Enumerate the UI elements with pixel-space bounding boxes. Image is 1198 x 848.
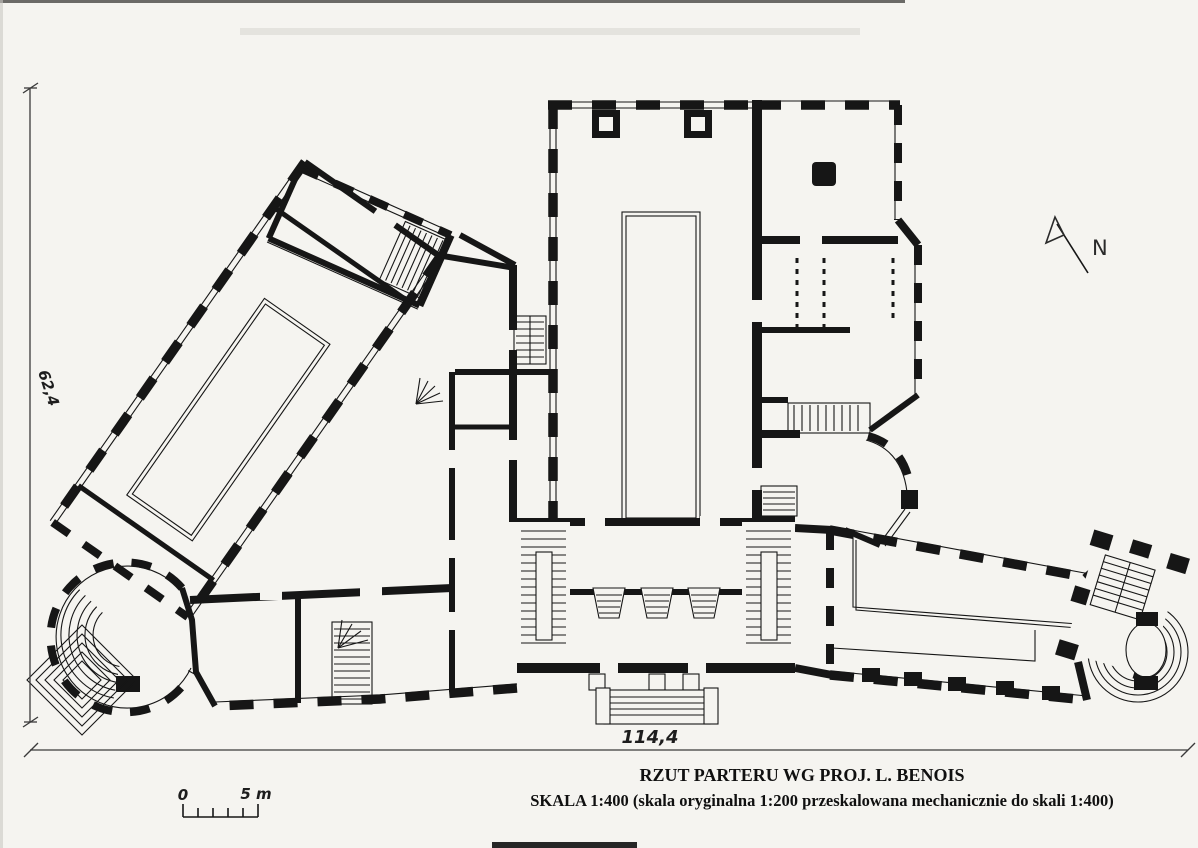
left-stair-hall bbox=[517, 522, 570, 652]
pier bbox=[592, 110, 620, 138]
stair-eye bbox=[1126, 623, 1166, 677]
scanned-floor-plan-sheet: N 62,4 114,4 0 5 m RZUT PARTERU WG PROJ.… bbox=[0, 0, 1198, 848]
dim-bottom-label: 114,4 bbox=[622, 727, 679, 748]
exterior-steps bbox=[596, 688, 718, 724]
plan-title: RZUT PARTERU WG PROJ. L. BENOIS bbox=[640, 765, 965, 785]
pier bbox=[901, 490, 918, 509]
floor-plan-svg: N 62,4 114,4 0 5 m RZUT PARTERU WG PROJ.… bbox=[0, 0, 1198, 848]
pier bbox=[812, 162, 836, 186]
scalebar-zero-label: 0 bbox=[178, 786, 188, 804]
vestibule-stairs bbox=[593, 588, 720, 618]
north-label: N bbox=[1092, 236, 1108, 260]
right-stair-hall bbox=[742, 522, 795, 652]
plan-scale-note: SKALA 1:400 (skala oryginalna 1:200 prze… bbox=[530, 791, 1114, 810]
pier bbox=[684, 110, 712, 138]
scalebar-five-label: 5 m bbox=[240, 785, 271, 803]
